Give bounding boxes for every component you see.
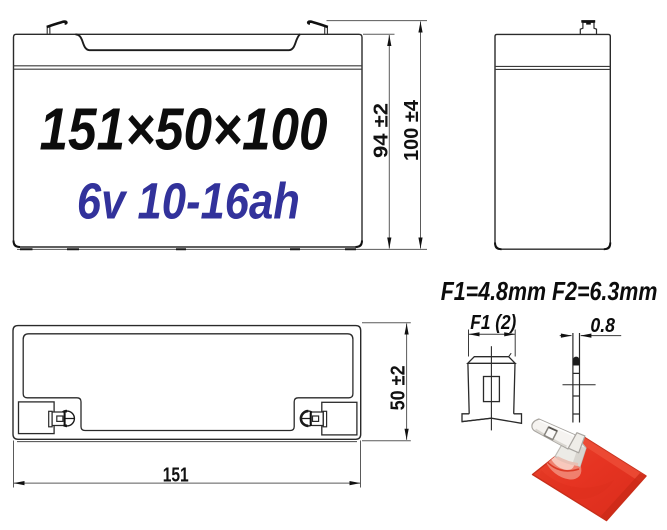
svg-text:0.8: 0.8 (590, 315, 615, 337)
svg-text:151: 151 (163, 464, 189, 486)
svg-text:6v 10-16ah: 6v 10-16ah (77, 173, 300, 230)
svg-text:151×50×100: 151×50×100 (40, 96, 328, 162)
svg-text:94 ±2: 94 ±2 (371, 103, 393, 158)
svg-text:F1=4.8mm F2=6.3mm: F1=4.8mm F2=6.3mm (441, 276, 658, 306)
svg-text:50 ±2: 50 ±2 (388, 365, 410, 410)
svg-text:F1 (2): F1 (2) (470, 312, 516, 334)
svg-text:100 ±4: 100 ±4 (401, 99, 423, 161)
